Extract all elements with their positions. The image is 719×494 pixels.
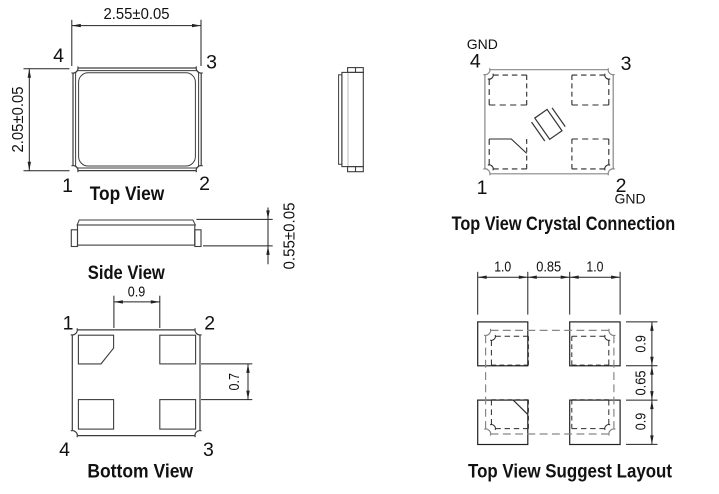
svg-text:2.05±0.05: 2.05±0.05 bbox=[10, 86, 27, 152]
svg-text:1: 1 bbox=[477, 177, 488, 199]
svg-text:Top View: Top View bbox=[90, 184, 165, 205]
svg-text:2.55±0.05: 2.55±0.05 bbox=[104, 6, 170, 23]
svg-text:Bottom View: Bottom View bbox=[87, 460, 193, 482]
svg-text:Side View: Side View bbox=[88, 263, 165, 284]
svg-text:1.0: 1.0 bbox=[494, 259, 511, 276]
svg-text:4: 4 bbox=[470, 51, 481, 73]
svg-text:0.65: 0.65 bbox=[633, 371, 650, 396]
svg-text:4: 4 bbox=[59, 439, 70, 461]
svg-text:1: 1 bbox=[63, 313, 74, 335]
svg-text:4: 4 bbox=[53, 45, 64, 67]
svg-text:0.9: 0.9 bbox=[633, 335, 650, 353]
svg-text:GND: GND bbox=[614, 191, 645, 207]
svg-text:1.0: 1.0 bbox=[586, 259, 603, 276]
svg-text:1: 1 bbox=[62, 175, 73, 197]
svg-text:3: 3 bbox=[203, 439, 214, 461]
svg-text:2: 2 bbox=[204, 313, 215, 335]
svg-text:0.55±0.05: 0.55±0.05 bbox=[282, 202, 299, 269]
svg-text:0.7: 0.7 bbox=[226, 373, 243, 391]
svg-text:Top View Crystal Connection: Top View Crystal Connection bbox=[452, 214, 676, 235]
svg-text:0.85: 0.85 bbox=[536, 259, 561, 276]
svg-text:0.9: 0.9 bbox=[128, 284, 146, 301]
svg-text:Top View Suggest Layout: Top View Suggest Layout bbox=[468, 460, 672, 482]
svg-text:2: 2 bbox=[199, 173, 210, 195]
svg-text:3: 3 bbox=[206, 52, 217, 74]
svg-text:GND: GND bbox=[467, 36, 498, 52]
svg-text:3: 3 bbox=[621, 53, 632, 75]
svg-text:0.9: 0.9 bbox=[633, 413, 650, 431]
